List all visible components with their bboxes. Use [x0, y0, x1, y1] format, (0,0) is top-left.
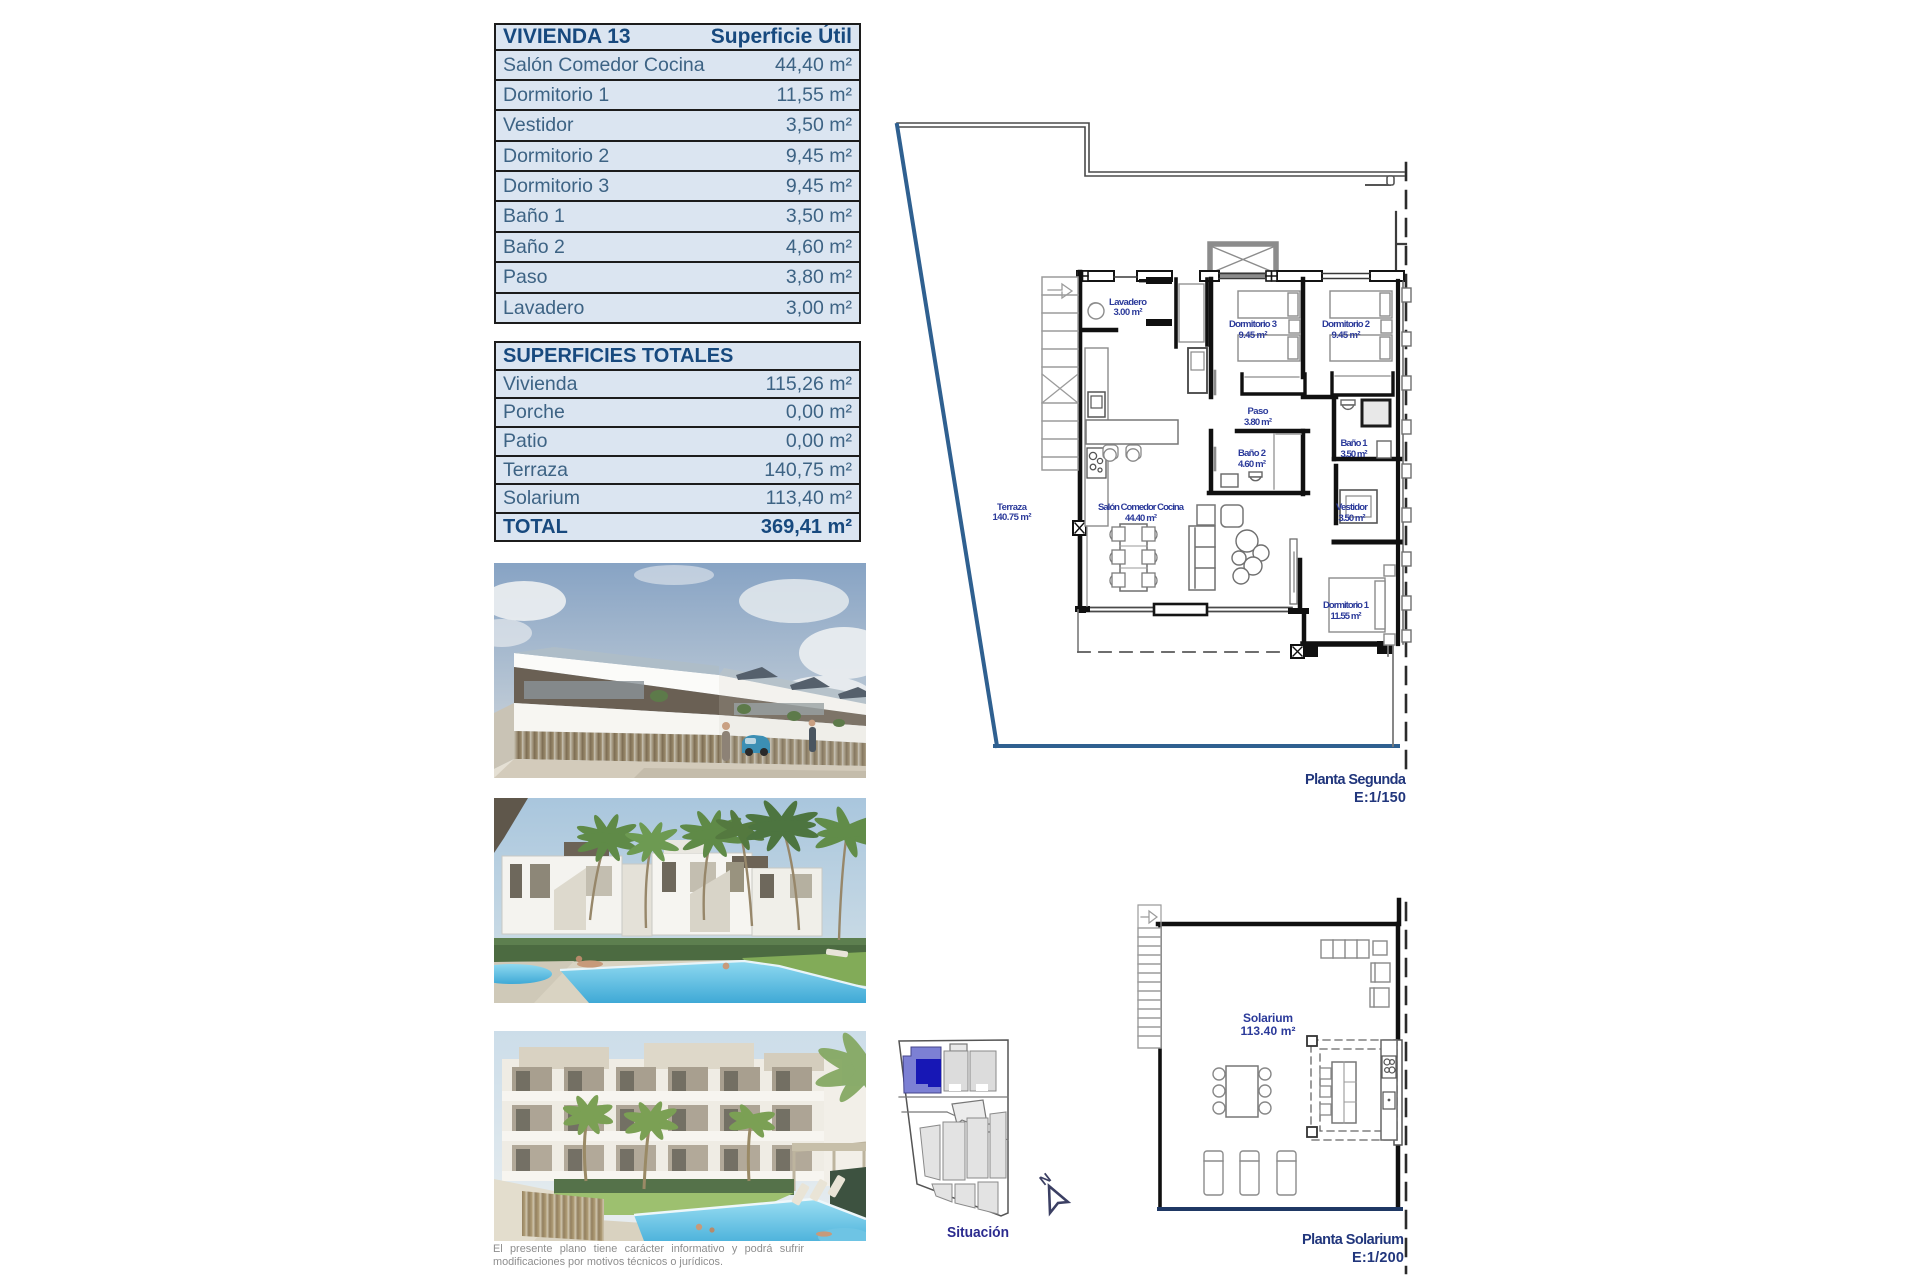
svg-text:Baño 2: Baño 2: [1238, 448, 1266, 459]
svg-text:N: N: [1036, 1170, 1054, 1189]
svg-text:44.40 m²: 44.40 m²: [1125, 513, 1157, 524]
svg-text:9.45 m²: 9.45 m²: [1239, 330, 1268, 341]
svg-text:Salón Comedor Cocina: Salón Comedor Cocina: [1098, 502, 1185, 513]
svg-text:4.60 m²: 4.60 m²: [1238, 459, 1266, 470]
svg-text:E:1/200: E:1/200: [1352, 1250, 1404, 1266]
svg-text:3.00 m²: 3.00 m²: [1114, 307, 1143, 318]
svg-text:3.50 m²: 3.50 m²: [1339, 513, 1366, 524]
svg-text:9.45 m²: 9.45 m²: [1332, 330, 1361, 341]
svg-text:3.80 m²: 3.80 m²: [1244, 417, 1272, 428]
svg-text:E:1/150: E:1/150: [1354, 790, 1406, 806]
svg-text:Dormitorio 3: Dormitorio 3: [1229, 319, 1277, 330]
svg-text:Dormitorio 1: Dormitorio 1: [1323, 600, 1370, 611]
svg-text:Solarium: Solarium: [1243, 1011, 1293, 1025]
svg-text:3.50 m²: 3.50 m²: [1341, 449, 1368, 460]
svg-text:Planta Solarium: Planta Solarium: [1302, 1232, 1404, 1248]
svg-text:Planta Segunda: Planta Segunda: [1305, 772, 1407, 788]
svg-text:140.75 m²: 140.75 m²: [993, 512, 1032, 523]
svg-text:113.40 m²: 113.40 m²: [1241, 1024, 1296, 1038]
svg-text:Baño 1: Baño 1: [1341, 438, 1369, 449]
svg-text:Paso: Paso: [1248, 406, 1269, 417]
svg-text:Situación: Situación: [947, 1224, 1009, 1241]
svg-text:11.55 m²: 11.55 m²: [1331, 611, 1362, 622]
svg-text:Vestidor: Vestidor: [1336, 502, 1368, 513]
svg-text:Dormitorio 2: Dormitorio 2: [1322, 319, 1370, 330]
